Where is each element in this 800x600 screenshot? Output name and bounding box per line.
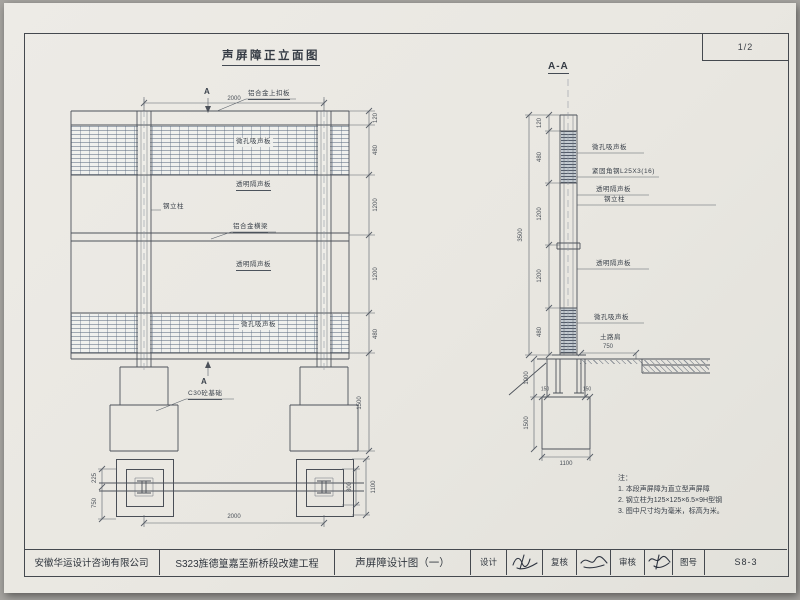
section-absorber-top-panel <box>561 131 576 183</box>
dim-label: 1000 <box>524 371 530 384</box>
page-number-box: 1/2 <box>702 34 788 61</box>
dim-label: 1200 <box>373 198 379 211</box>
dim-label: 480 <box>537 152 543 162</box>
paper: 1/2 声屏 <box>4 3 796 593</box>
plan-right-foundation-inner <box>306 469 344 507</box>
label-shoulder: 土路肩 <box>600 335 621 342</box>
titleblock-check-label: 复核 <box>542 549 576 575</box>
dim-label: 150 <box>541 388 549 393</box>
label-beam: 铝合金横梁 <box>233 224 268 233</box>
dim-label: 1200 <box>373 267 379 280</box>
notes-heading: 注： <box>618 473 793 484</box>
design-signature <box>506 549 542 575</box>
audit-signature <box>644 549 672 575</box>
dim-label: 750 <box>603 344 613 350</box>
note-item: 2. 钢立柱为125×125×6.5×9H型钢 <box>618 495 793 506</box>
elevation-right-column <box>318 112 330 366</box>
scanned-sheet: 1/2 声屏 <box>0 0 800 600</box>
label-absorber-top: 微孔吸声板 <box>234 138 273 147</box>
label-absorber-bottom: 微孔吸声板 <box>239 321 278 330</box>
elevation-left-column <box>138 112 150 366</box>
label-angle-steel: 紧固角钢L25X3(16) <box>592 169 655 176</box>
elevation-absorber-top-panel <box>71 126 349 175</box>
dim-label: 150 <box>583 388 591 393</box>
dim-label: 2000 <box>227 96 240 102</box>
titleblock-company: 安徽华运设计咨询有限公司 <box>24 549 159 575</box>
dim-label: 1200 <box>537 207 543 220</box>
dim-label: 480 <box>373 145 379 155</box>
elevation-absorber-bottom-panel <box>71 314 349 353</box>
dim-label: 120 <box>537 118 543 128</box>
dim-label: 120 <box>373 113 379 123</box>
signature-scribble <box>578 551 610 573</box>
dim-label: 1500 <box>357 396 363 409</box>
label-section-transparent-upper: 透明隔声板 <box>596 187 631 194</box>
check-signature <box>576 549 610 575</box>
signature-scribble <box>509 551 541 573</box>
label-section-column: 钢立柱 <box>604 197 625 204</box>
dim-label: 1200 <box>537 269 543 282</box>
titleblock-project: S323旌德篁嘉至新桥段改建工程 <box>159 549 334 575</box>
dim-label: 3500 <box>518 228 524 241</box>
titleblock-design-label: 设计 <box>470 549 506 575</box>
titleblock-number-label: 图号 <box>672 549 704 575</box>
label-top-cap: 铝合金上扣板 <box>248 91 290 100</box>
label-section-transparent-lower: 透明隔声板 <box>596 261 631 268</box>
label-section-absorber-top: 微孔吸声板 <box>592 145 627 152</box>
titleblock-drawing-title: 声屏障设计图（一） <box>334 549 470 575</box>
titleblock-drawing-number: S8-3 <box>704 549 787 575</box>
road-surface-hatch <box>580 360 708 364</box>
dim-label: 480 <box>373 329 379 339</box>
section-title: A-A <box>548 61 569 74</box>
note-item: 3. 图中尺寸均为毫米，标高为米。 <box>618 506 793 517</box>
dim-label: 1100 <box>371 481 377 494</box>
note-item: 1. 本段声屏障为直立型声屏障 <box>618 484 793 495</box>
notes-block: 注： 1. 本段声屏障为直立型声屏障 2. 钢立柱为125×125×6.5×9H… <box>618 473 793 517</box>
label-section-absorber-bottom: 微孔吸声板 <box>594 315 629 322</box>
section-marker-top: A <box>204 87 210 96</box>
label-transparent-upper: 透明隔声板 <box>236 182 271 191</box>
dim-label: 800 <box>347 482 353 492</box>
dim-label: 1500 <box>524 416 530 429</box>
signature-scribble <box>646 551 672 573</box>
label-foundation: C30砼基础 <box>188 391 222 400</box>
label-transparent-lower: 透明隔声板 <box>236 262 271 271</box>
plan-left-foundation-inner <box>126 469 164 507</box>
dim-label: 225 <box>92 473 98 483</box>
dim-label: 2000 <box>227 514 240 520</box>
section-absorber-bottom-panel <box>561 308 576 353</box>
elevation-title: 声屏障正立面图 <box>222 47 320 66</box>
pavement-hatch <box>643 366 709 372</box>
page-number: 1/2 <box>738 42 754 52</box>
label-column: 钢立柱 <box>163 204 184 211</box>
section-marker-bottom: A <box>201 377 207 386</box>
dim-label: 1100 <box>560 461 573 467</box>
titleblock-audit-label: 审核 <box>610 549 644 575</box>
dim-label: 480 <box>537 327 543 337</box>
dim-label: 750 <box>92 498 98 508</box>
